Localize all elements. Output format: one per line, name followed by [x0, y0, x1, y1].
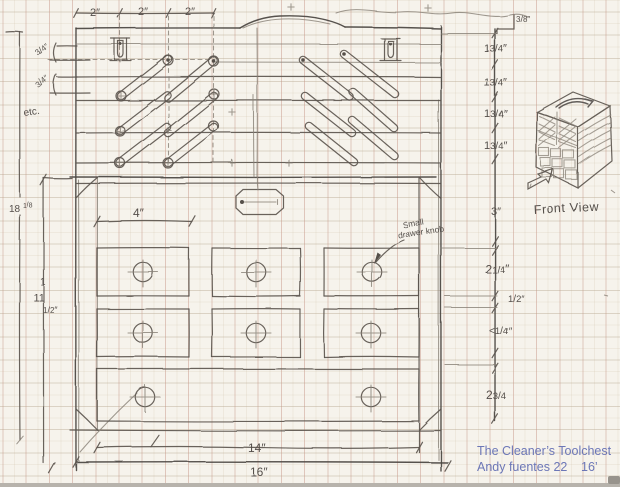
svg-text:Andy fuentes 22: Andy fuentes 22 — [477, 460, 567, 474]
svg-text:2″: 2″ — [185, 6, 195, 18]
svg-text:16″: 16″ — [250, 465, 268, 479]
svg-text:16’: 16’ — [581, 460, 598, 474]
svg-text:13/4″: 13/4″ — [484, 140, 508, 152]
svg-text:1/2″: 1/2″ — [43, 305, 58, 315]
svg-text:21/4″: 21/4″ — [485, 262, 510, 276]
svg-text:1: 1 — [40, 277, 46, 288]
svg-text:18: 18 — [9, 204, 21, 215]
svg-text:Front View: Front View — [533, 200, 600, 217]
svg-text:The Cleaner’s Toolchest: The Cleaner’s Toolchest — [477, 444, 612, 458]
svg-text:2″: 2″ — [90, 7, 100, 19]
svg-text:2″: 2″ — [138, 6, 148, 18]
svg-text:14″: 14″ — [248, 441, 266, 455]
svg-text:3″: 3″ — [491, 206, 501, 218]
svg-text:3/8″: 3/8″ — [516, 14, 530, 24]
svg-text:11: 11 — [33, 292, 44, 304]
svg-text:23/4: 23/4 — [486, 388, 506, 402]
svg-text:4″: 4″ — [133, 206, 145, 220]
svg-text:<1/4″: <1/4″ — [489, 326, 512, 337]
svg-text:13/4″: 13/4″ — [484, 77, 508, 89]
svg-text:3/4″: 3/4″ — [33, 41, 51, 58]
svg-text:13/4″: 13/4″ — [484, 108, 508, 120]
svg-text:13/4″: 13/4″ — [484, 43, 508, 55]
svg-text:1/2″: 1/2″ — [508, 294, 525, 305]
svg-text:3/4″: 3/4″ — [33, 73, 51, 90]
svg-text:etc.: etc. — [23, 106, 40, 119]
svg-text:1/8: 1/8 — [23, 201, 33, 210]
